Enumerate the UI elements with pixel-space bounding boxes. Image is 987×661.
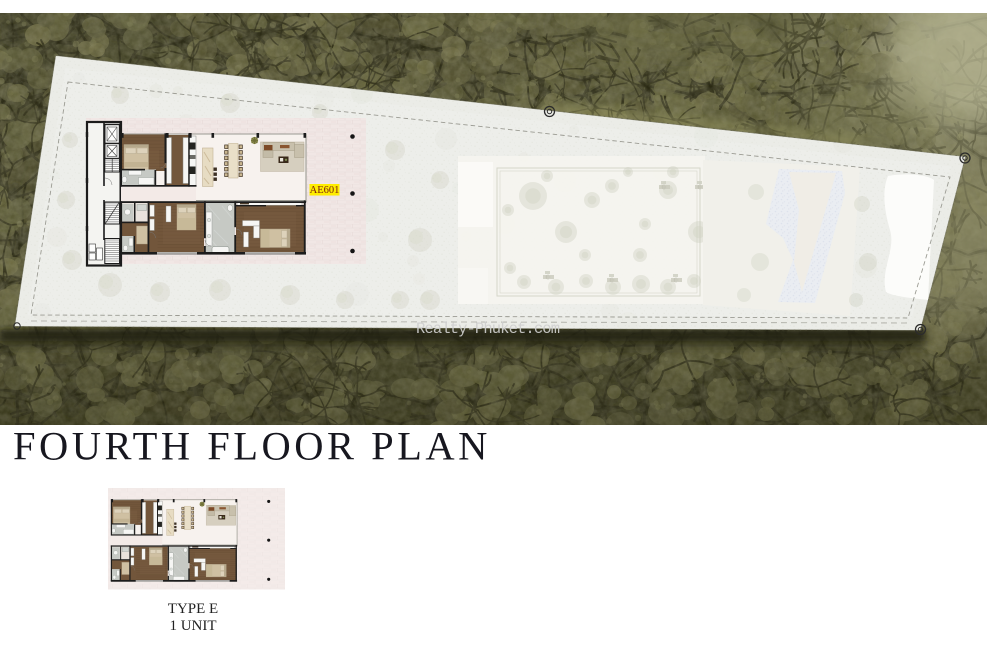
svg-text:TYPE E: TYPE E [168,601,218,617]
svg-text:Realty-Phuket.com: Realty-Phuket.com [416,320,560,338]
svg-text:1 UNIT: 1 UNIT [169,618,216,634]
svg-text:AE601: AE601 [310,185,340,196]
svg-text:FOURTH FLOOR PLAN: FOURTH FLOOR PLAN [13,424,491,469]
